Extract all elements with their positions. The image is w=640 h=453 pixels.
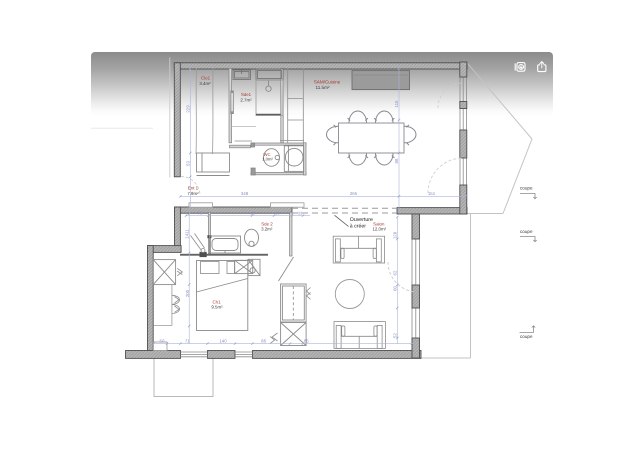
svg-text:9.5m²: 9.5m² xyxy=(211,304,223,309)
svg-text:200: 200 xyxy=(185,289,190,297)
svg-text:3.4m²: 3.4m² xyxy=(199,81,211,86)
svg-text:151: 151 xyxy=(428,191,436,196)
svg-text:71: 71 xyxy=(185,338,190,343)
svg-text:60: 60 xyxy=(275,211,280,216)
svg-text:62: 62 xyxy=(393,270,398,275)
svg-text:coupe: coupe xyxy=(520,185,533,190)
svg-text:12.0m²: 12.0m² xyxy=(372,227,386,232)
svg-text:7.9m²: 7.9m² xyxy=(187,191,199,196)
svg-text:2.7m²: 2.7m² xyxy=(240,97,252,102)
svg-text:11.5m²: 11.5m² xyxy=(316,85,330,90)
svg-text:33: 33 xyxy=(298,211,303,216)
svg-text:Ouverture: Ouverture xyxy=(350,217,373,223)
svg-text:65: 65 xyxy=(304,338,309,343)
svg-text:140: 140 xyxy=(219,338,227,343)
svg-text:265: 265 xyxy=(350,191,358,196)
svg-text:coupe: coupe xyxy=(520,229,533,234)
svg-text:86: 86 xyxy=(261,338,266,343)
svg-text:1411: 1411 xyxy=(184,229,189,239)
svg-text:à créer: à créer xyxy=(350,223,366,229)
svg-text:Clo1: Clo1 xyxy=(201,76,211,81)
svg-text:60: 60 xyxy=(393,286,398,291)
svg-text:75: 75 xyxy=(198,211,203,216)
svg-text:115: 115 xyxy=(394,100,399,108)
svg-text:Ent 1: Ent 1 xyxy=(188,186,199,191)
svg-text:88: 88 xyxy=(394,158,399,163)
svg-text:50: 50 xyxy=(160,338,165,343)
svg-text:229: 229 xyxy=(185,105,190,113)
svg-text:1.0m²: 1.0m² xyxy=(262,157,273,162)
svg-text:3.2m²: 3.2m² xyxy=(261,226,273,231)
svg-text:coupe: coupe xyxy=(520,334,533,339)
svg-text:Sde1: Sde1 xyxy=(241,92,252,97)
svg-text:128: 128 xyxy=(393,231,398,239)
svg-text:52: 52 xyxy=(393,333,398,338)
svg-text:348: 348 xyxy=(241,191,249,196)
svg-text:SAM/Cuisine: SAM/Cuisine xyxy=(314,79,341,84)
svg-text:53: 53 xyxy=(185,161,190,166)
